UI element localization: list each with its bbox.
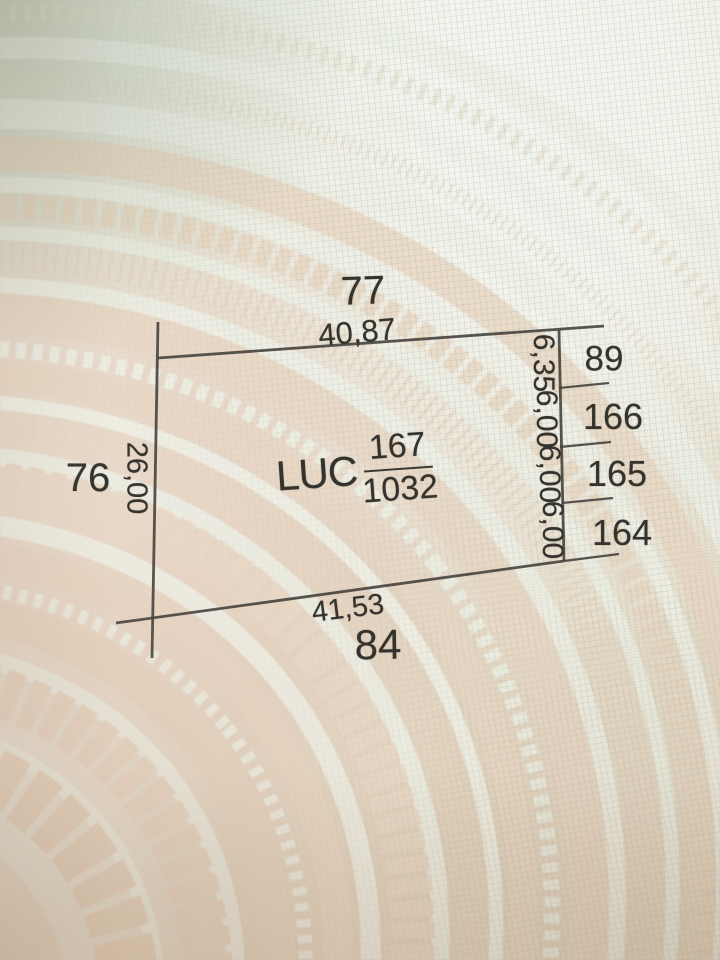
right-segment-length-3: 6,00 <box>534 445 564 503</box>
right-segment-length-2: 6,00 <box>531 390 561 448</box>
right-tick-2 <box>560 442 611 447</box>
neighbor-right-label-3: 165 <box>587 456 647 492</box>
right-segment-length-1: 6,35 <box>528 334 558 392</box>
parcel-area-label: 1032 <box>361 467 439 510</box>
neighbor-right-label-4: 164 <box>592 515 652 551</box>
right-segment-length-4: 6,00 <box>537 501 567 559</box>
land-use-code-label: LUC <box>275 450 359 498</box>
photographed-land-certificate: 77 40,87 76 26,00 LUC 167 1032 41,53 84 … <box>0 0 720 960</box>
neighbor-right-label-1: 89 <box>585 342 624 377</box>
top-length-label: 40,87 <box>317 313 397 351</box>
neighbor-bottom-label: 84 <box>354 624 401 667</box>
right-tick-3 <box>562 498 613 503</box>
right-tick-4 <box>564 554 619 561</box>
parcel-number-area-fraction: 167 1032 <box>358 426 439 509</box>
parcel-number-label: 167 <box>362 427 433 472</box>
neighbor-top-label: 77 <box>340 270 386 312</box>
neighbor-left-label: 76 <box>66 458 111 498</box>
boundary-left <box>152 322 158 658</box>
right-tick-1 <box>559 383 609 388</box>
parcel-id-group: LUC 167 1032 <box>273 426 439 515</box>
left-length-label: 26,00 <box>122 442 151 515</box>
neighbor-right-label-2: 166 <box>583 399 643 435</box>
